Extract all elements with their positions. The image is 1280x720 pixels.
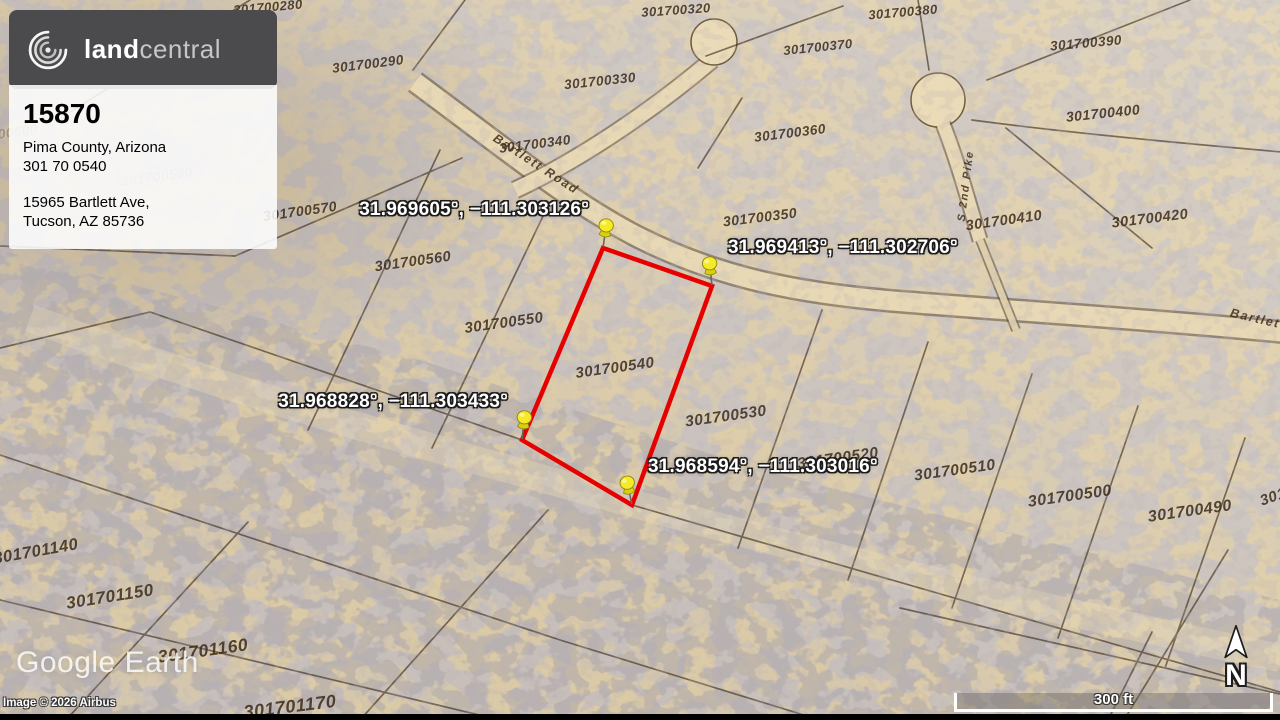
listing-address-line2: Tucson, AZ 85736 bbox=[23, 212, 261, 231]
pin-coordinate-label: 31.969605°, −111.303126° bbox=[359, 199, 589, 221]
google-earth-viewport[interactable]: 3017002803017003203017003803017003703017… bbox=[0, 0, 1280, 720]
listing-details: 15870 Pima County, Arizona 301 70 0540 1… bbox=[9, 85, 277, 249]
listing-location: Pima County, Arizona bbox=[23, 138, 261, 157]
landcentral-logo-header: landcentral bbox=[9, 10, 277, 89]
map-pushpin[interactable] bbox=[511, 409, 536, 441]
landcentral-wordmark: landcentral bbox=[84, 34, 221, 65]
logo-word-land: land bbox=[84, 34, 139, 64]
pin-coordinate-label: 31.968828°, −111.303433° bbox=[278, 391, 508, 413]
landcentral-logo-icon bbox=[26, 28, 70, 72]
map-pushpin[interactable] bbox=[615, 473, 643, 507]
pin-coordinate-label: 31.969413°, −111.302706° bbox=[728, 237, 958, 259]
north-compass[interactable]: N bbox=[1218, 625, 1254, 691]
listing-id: 15870 bbox=[23, 99, 261, 129]
logo-word-central: central bbox=[139, 34, 221, 64]
google-earth-watermark: Google Earth bbox=[16, 646, 199, 680]
bottom-black-bar bbox=[0, 714, 1280, 720]
map-pushpin[interactable] bbox=[698, 255, 723, 287]
listing-apn: 301 70 0540 bbox=[23, 157, 261, 176]
map-pushpin[interactable] bbox=[592, 217, 618, 250]
scale-bar: 300 ft bbox=[954, 693, 1273, 712]
listing-card: landcentral 15870 Pima County, Arizona 3… bbox=[9, 10, 277, 249]
imagery-copyright: Image © 2026 Airbus bbox=[3, 697, 116, 709]
listing-address-line1: 15965 Bartlett Ave, bbox=[23, 193, 261, 212]
north-letter: N bbox=[1218, 661, 1254, 691]
pin-coordinate-label: 31.968594°, −111.303016° bbox=[648, 456, 878, 478]
north-arrow-icon bbox=[1221, 625, 1251, 659]
scale-bar-label: 300 ft bbox=[1094, 691, 1133, 708]
